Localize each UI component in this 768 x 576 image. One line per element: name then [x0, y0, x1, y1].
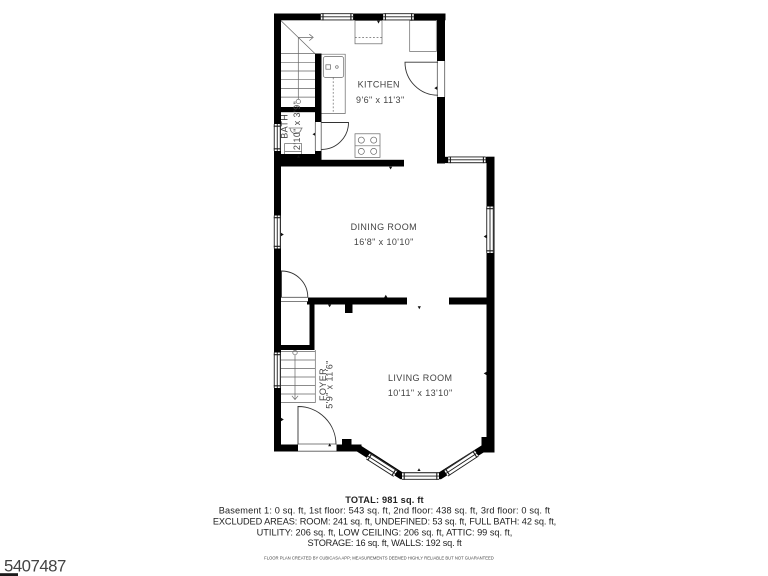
svg-text:FLOOR PLAN CREATED BY CUBICASA: FLOOR PLAN CREATED BY CUBICASA APP; MEAS… — [264, 556, 494, 561]
svg-text:EXCLUDED AREAS: ROOM: 241 sq.: EXCLUDED AREAS: ROOM: 241 sq. ft, UNDEFI… — [213, 517, 556, 527]
svg-text:DINING ROOM: DINING ROOM — [351, 222, 417, 232]
svg-text:5407487: 5407487 — [4, 556, 66, 575]
svg-text:10'11" x 13'10": 10'11" x 13'10" — [388, 388, 453, 398]
svg-text:9'6" x 11'3": 9'6" x 11'3" — [356, 95, 405, 105]
svg-text:KITCHEN: KITCHEN — [358, 79, 400, 89]
svg-text:TOTAL: 981 sq. ft: TOTAL: 981 sq. ft — [345, 495, 424, 505]
svg-text:UTILITY: 206 sq. ft, LOW CEILI: UTILITY: 206 sq. ft, LOW CEILING: 206 sq… — [257, 527, 513, 537]
svg-text:5'9" x 11'6": 5'9" x 11'6" — [325, 360, 335, 409]
svg-text:LIVING ROOM: LIVING ROOM — [388, 373, 452, 383]
svg-text:16'8" x 10'10": 16'8" x 10'10" — [354, 237, 414, 247]
svg-text:STORAGE: 16 sq. ft, WALLS: 192: STORAGE: 16 sq. ft, WALLS: 192 sq. ft — [308, 538, 463, 548]
svg-text:Basement 1: 0 sq. ft, 1st floo: Basement 1: 0 sq. ft, 1st floor: 543 sq.… — [219, 506, 551, 516]
svg-text:2'10" x 3'9": 2'10" x 3'9" — [292, 101, 302, 150]
svg-text:BATH: BATH — [280, 114, 290, 139]
